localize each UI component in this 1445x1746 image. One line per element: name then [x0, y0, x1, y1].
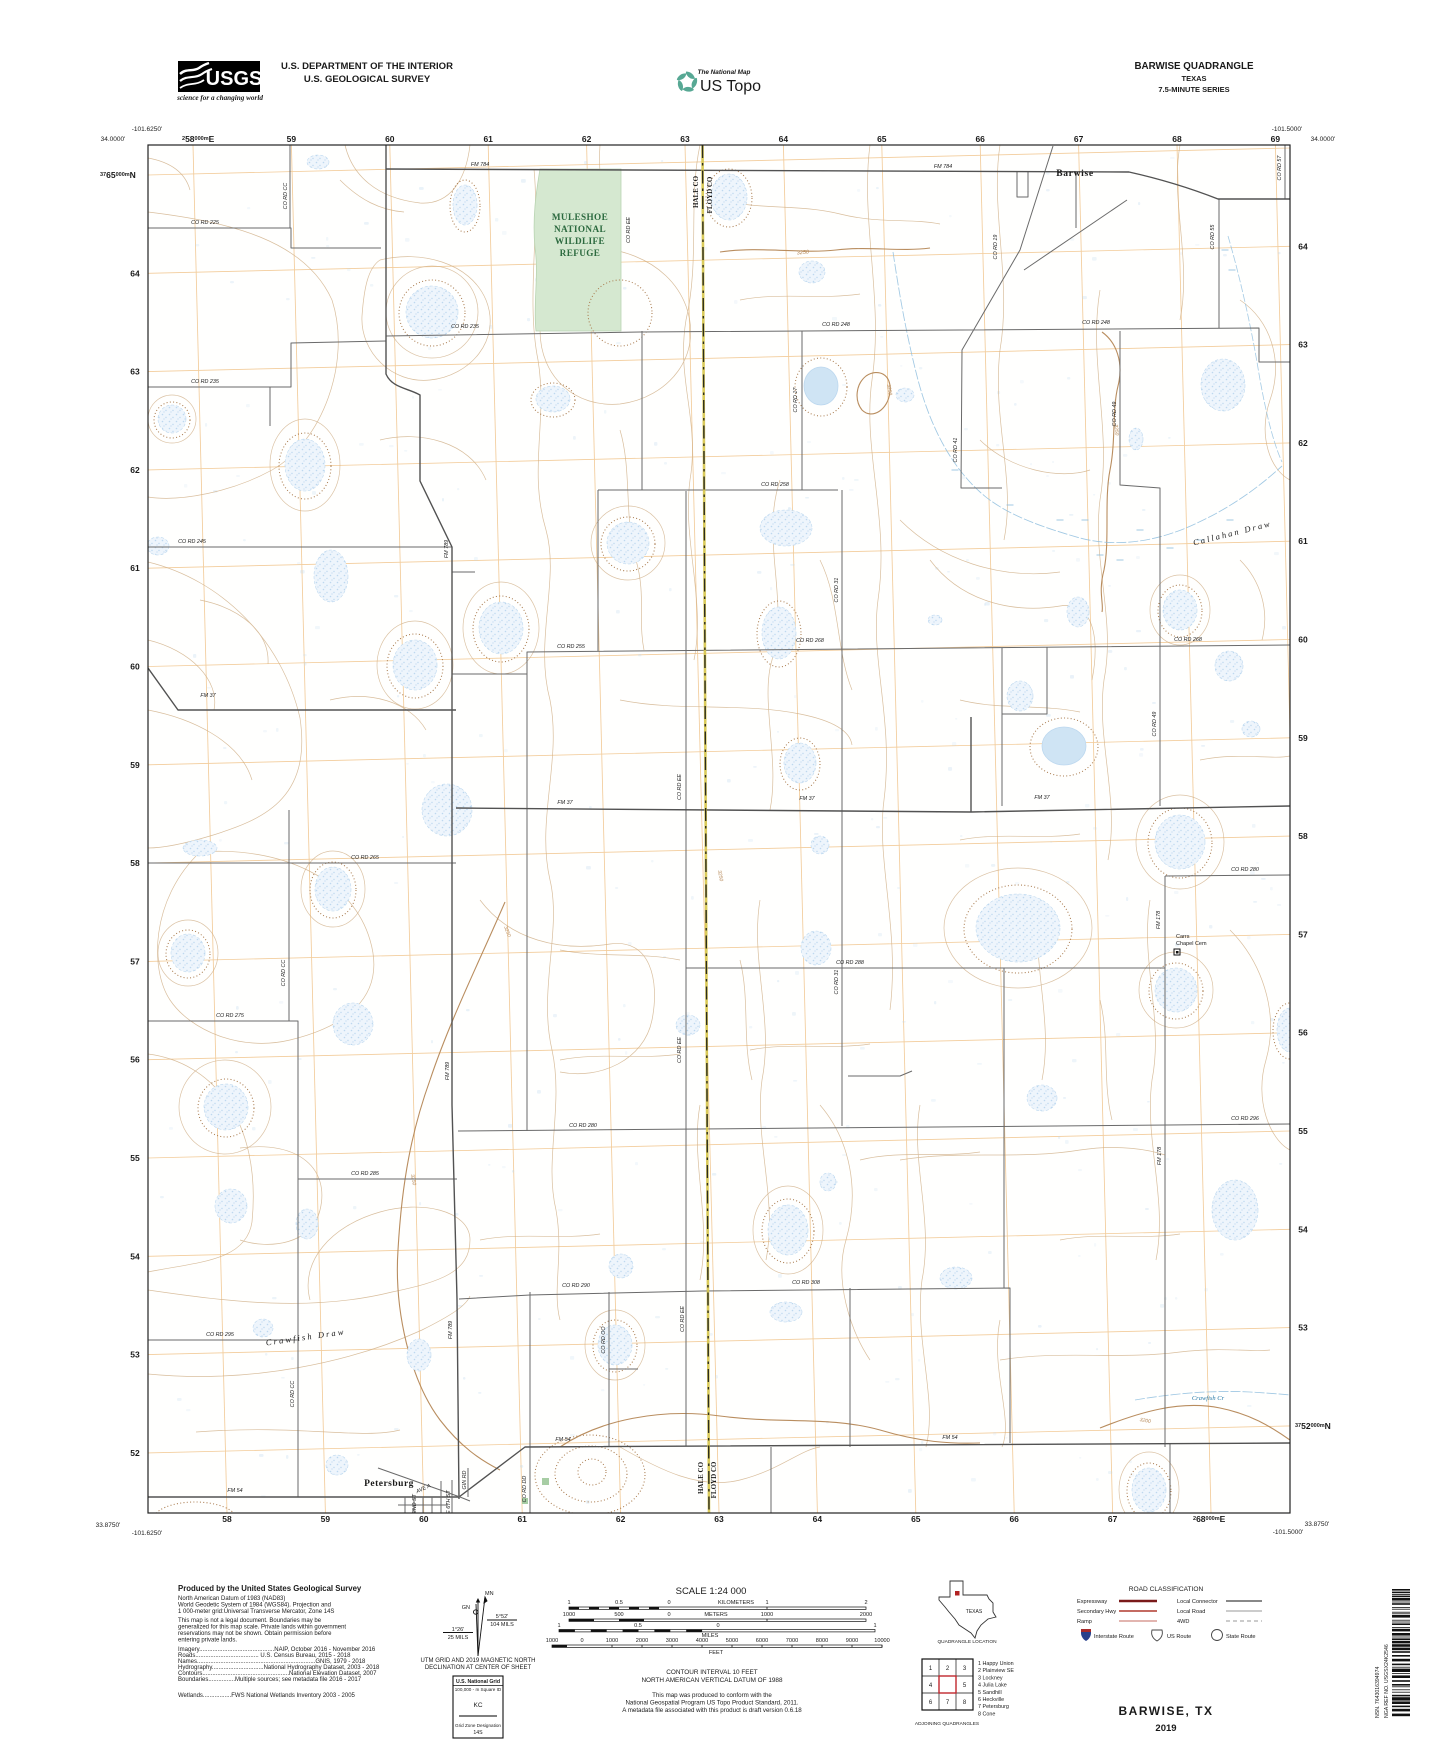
svg-text:CO RD EE: CO RD EE: [680, 1306, 686, 1332]
svg-text:State Route: State Route: [1226, 1634, 1256, 1640]
svg-text:Secondary Hwy: Secondary Hwy: [1077, 1609, 1116, 1615]
svg-text:CO RD 31: CO RD 31: [834, 970, 840, 995]
svg-text:1000: 1000: [546, 1638, 558, 1644]
svg-text:100,000 - m Square ID: 100,000 - m Square ID: [455, 1687, 502, 1692]
svg-text:1 000-meter grid:Universal Tra: 1 000-meter grid:Universal Transverse Me…: [178, 1609, 334, 1615]
svg-text:1000: 1000: [761, 1612, 773, 1618]
svg-text:FM 789: FM 789: [444, 540, 450, 558]
svg-text:62: 62: [130, 465, 140, 475]
svg-text:64: 64: [130, 268, 140, 278]
svg-text:CO RD 248: CO RD 248: [1082, 320, 1110, 326]
svg-text:66: 66: [975, 134, 985, 144]
svg-text:CO RD 235: CO RD 235: [191, 379, 220, 385]
svg-text:CO RD 245: CO RD 245: [178, 539, 207, 545]
svg-text:CO RD 290: CO RD 290: [562, 1283, 590, 1289]
svg-text:68: 68: [1172, 134, 1182, 144]
svg-text:63: 63: [1298, 340, 1308, 350]
svg-text:54: 54: [130, 1251, 140, 1261]
svg-text:2: 2: [864, 1600, 867, 1606]
svg-text:METERS: METERS: [704, 1612, 728, 1618]
svg-text:64: 64: [779, 134, 789, 144]
svg-text:CO RD 255: CO RD 255: [557, 644, 586, 650]
svg-text:FM 784: FM 784: [471, 162, 489, 168]
svg-text:54: 54: [1298, 1224, 1308, 1234]
svg-text:DECLINATION AT CENTER OF SHEET: DECLINATION AT CENTER OF SHEET: [425, 1665, 532, 1671]
svg-text:1: 1: [765, 1600, 768, 1606]
svg-text:Local Road: Local Road: [1177, 1609, 1205, 1615]
svg-text:US Topo: US Topo: [700, 78, 761, 95]
svg-text:2019: 2019: [1155, 1723, 1176, 1734]
svg-text:1 Happy Union: 1 Happy Union: [978, 1661, 1014, 1667]
svg-text:4000: 4000: [696, 1638, 708, 1644]
svg-text:69: 69: [1271, 134, 1281, 144]
svg-text:E 6TH ST: E 6TH ST: [446, 1489, 452, 1513]
svg-text:33.8750': 33.8750': [96, 1522, 121, 1529]
svg-text:25 MILS: 25 MILS: [448, 1635, 469, 1641]
svg-text:60: 60: [1298, 635, 1308, 645]
svg-text:33.8750': 33.8750': [1305, 1521, 1330, 1528]
svg-text:58: 58: [1298, 831, 1308, 841]
svg-text:This map was produced to confo: This map was produced to conform with th…: [652, 1692, 772, 1699]
svg-text:Crawfish Cr: Crawfish Cr: [1192, 1395, 1225, 1402]
svg-text:FM 789: FM 789: [445, 1062, 451, 1080]
svg-text:10000: 10000: [874, 1638, 890, 1644]
svg-text:Carrs: Carrs: [1176, 934, 1190, 940]
svg-text:FLOYD CO: FLOYD CO: [706, 176, 714, 213]
svg-text:1: 1: [873, 1623, 876, 1629]
svg-text:34.0000': 34.0000': [1311, 136, 1336, 143]
svg-text:US Route: US Route: [1167, 1634, 1191, 1640]
svg-text:U.S. GEOLOGICAL SURVEY: U.S. GEOLOGICAL SURVEY: [304, 74, 431, 85]
svg-text:CO RD CC: CO RD CC: [281, 960, 287, 987]
svg-text:CO RD 268: CO RD 268: [1174, 637, 1202, 643]
svg-text:CO RD 235: CO RD 235: [451, 324, 480, 330]
svg-text:CO RD OO: CO RD OO: [601, 1326, 607, 1354]
svg-text:57: 57: [130, 956, 140, 966]
svg-text:0: 0: [667, 1600, 670, 1606]
svg-text:BARWISE, TX: BARWISE, TX: [1119, 1704, 1214, 1718]
svg-text:CO RD 19: CO RD 19: [993, 235, 999, 260]
svg-text:CO RD 295: CO RD 295: [206, 1332, 235, 1338]
svg-text:62: 62: [582, 134, 592, 144]
svg-text:63: 63: [680, 134, 690, 144]
svg-text:TEXAS: TEXAS: [1181, 74, 1206, 83]
svg-text:1°26': 1°26': [452, 1627, 464, 1633]
svg-text:2000: 2000: [860, 1612, 872, 1618]
svg-text:9000: 9000: [846, 1638, 858, 1644]
svg-text:60: 60: [130, 662, 140, 672]
svg-text:59: 59: [1298, 733, 1308, 743]
svg-text:63: 63: [714, 1514, 724, 1524]
svg-text:Ramp: Ramp: [1077, 1619, 1092, 1625]
svg-text:GIN RD: GIN RD: [462, 1470, 468, 1489]
svg-text:59: 59: [130, 760, 140, 770]
svg-text:53: 53: [130, 1350, 140, 1360]
svg-text:61: 61: [1298, 536, 1308, 546]
svg-text:A metadata file associated wit: A metadata file associated with this pro…: [622, 1707, 802, 1714]
svg-text:entering private lands.: entering private lands.: [178, 1638, 237, 1644]
svg-text:QUADRANGLE LOCATION: QUADRANGLE LOCATION: [937, 1639, 997, 1645]
svg-text:CO RD 308: CO RD 308: [792, 1280, 820, 1286]
svg-text:5°52': 5°52': [496, 1614, 508, 1620]
svg-text:65: 65: [877, 134, 887, 144]
svg-text:61: 61: [483, 134, 493, 144]
svg-text:52: 52: [130, 1448, 140, 1458]
svg-text:FM 37: FM 37: [557, 800, 573, 806]
svg-text:Interstate Route: Interstate Route: [1094, 1634, 1134, 1640]
svg-text:4 Julia Lake: 4 Julia Lake: [978, 1683, 1007, 1689]
svg-text:1000: 1000: [606, 1638, 618, 1644]
svg-text:-101.5000': -101.5000': [1273, 1529, 1304, 1536]
svg-text:59: 59: [287, 134, 297, 144]
svg-text:67: 67: [1108, 1514, 1118, 1524]
svg-text:0: 0: [716, 1623, 719, 1629]
svg-text:ADJOINING QUADRANGLES: ADJOINING QUADRANGLES: [915, 1721, 979, 1727]
svg-text:REFUGE: REFUGE: [560, 248, 601, 258]
svg-text:7 Petersburg: 7 Petersburg: [978, 1704, 1009, 1710]
svg-text:61: 61: [517, 1514, 527, 1524]
svg-text:64: 64: [813, 1514, 823, 1524]
svg-text:USGS: USGS: [206, 68, 263, 90]
svg-text:58: 58: [130, 858, 140, 868]
svg-text:63: 63: [130, 367, 140, 377]
svg-text:TEXAS: TEXAS: [966, 1609, 983, 1615]
svg-text:66: 66: [1009, 1514, 1019, 1524]
svg-text:Boundaries................Mult: Boundaries................Multiple sourc…: [178, 1677, 362, 1683]
svg-text:CONTOUR INTERVAL 10 FEET: CONTOUR INTERVAL 10 FEET: [666, 1669, 757, 1676]
svg-text:GN: GN: [462, 1605, 470, 1611]
svg-text:59: 59: [321, 1514, 331, 1524]
svg-text:FM 54: FM 54: [555, 1437, 570, 1443]
svg-text:57: 57: [1298, 929, 1308, 939]
svg-text:NORTH AMERICAN VERTICAL DATUM: NORTH AMERICAN VERTICAL DATUM OF 1988: [641, 1677, 783, 1684]
svg-text:SCALE 1:24 000: SCALE 1:24 000: [676, 1586, 747, 1597]
svg-text:HALE CO: HALE CO: [692, 175, 700, 208]
svg-text:65: 65: [911, 1514, 921, 1524]
svg-text:Chapel Cem: Chapel Cem: [1176, 941, 1207, 947]
svg-text:CO RD 280: CO RD 280: [1231, 867, 1259, 873]
svg-text:FM 54: FM 54: [227, 1488, 242, 1494]
svg-text:NATIONAL: NATIONAL: [554, 224, 606, 234]
svg-text:8 Cone: 8 Cone: [978, 1711, 995, 1717]
svg-text:CO RD CC: CO RD CC: [290, 1381, 296, 1408]
svg-text:0: 0: [667, 1612, 670, 1618]
svg-text:0.5: 0.5: [634, 1623, 642, 1629]
svg-text:HALE CO: HALE CO: [697, 1461, 705, 1494]
svg-text:CO RD 265: CO RD 265: [351, 855, 380, 861]
svg-text:5 Sandhill: 5 Sandhill: [978, 1690, 1002, 1696]
svg-text:FM 178: FM 178: [1157, 1147, 1163, 1165]
svg-text:CO RD CC: CO RD CC: [283, 183, 289, 210]
svg-text:Produced by the United States: Produced by the United States Geological…: [178, 1584, 362, 1593]
svg-text:1: 1: [567, 1600, 570, 1606]
svg-text:North American Datum of 1983 (: North American Datum of 1983 (NAD83): [178, 1596, 285, 1602]
svg-text:-101.6250': -101.6250': [132, 126, 163, 133]
svg-text:CO RD DD: CO RD DD: [522, 1476, 528, 1503]
svg-text:2000: 2000: [636, 1638, 648, 1644]
svg-text:UTM GRID AND 2019 MAGNETIC NOR: UTM GRID AND 2019 MAGNETIC NORTH: [421, 1658, 536, 1664]
svg-text:World Geodetic System of 1984: World Geodetic System of 1984 (WGS84). P…: [178, 1603, 331, 1609]
svg-text:-101.6250': -101.6250': [132, 1530, 163, 1537]
svg-text:-101.5000': -101.5000': [1272, 126, 1303, 133]
svg-text:60: 60: [385, 134, 395, 144]
svg-text:53: 53: [1298, 1323, 1308, 1333]
svg-text:KILOMETERS: KILOMETERS: [718, 1600, 754, 1606]
svg-text:14S: 14S: [473, 1730, 483, 1736]
svg-text:58: 58: [222, 1514, 232, 1524]
svg-text:FM 784: FM 784: [934, 164, 952, 170]
svg-text:This map is not a legal docume: This map is not a legal document. Bounda…: [178, 1618, 322, 1624]
svg-text:0: 0: [580, 1638, 583, 1644]
svg-text:FEET: FEET: [709, 1650, 724, 1656]
svg-text:U.S. National Grid: U.S. National Grid: [456, 1679, 500, 1685]
svg-text:62: 62: [616, 1514, 626, 1524]
svg-text:reservations may not be shown.: reservations may not be shown. Obtain pe…: [178, 1631, 332, 1637]
svg-text:CO RD 41: CO RD 41: [953, 438, 959, 463]
svg-text:CO RD 17: CO RD 17: [793, 387, 799, 413]
svg-text:FM 54: FM 54: [942, 1435, 957, 1441]
svg-text:science for a changing world: science for a changing world: [176, 94, 263, 102]
svg-text:2 Plainview SE: 2 Plainview SE: [978, 1668, 1014, 1674]
svg-text:MULESHOE: MULESHOE: [552, 212, 608, 222]
svg-text:3 Lockney: 3 Lockney: [978, 1675, 1003, 1681]
svg-text:BARWISE QUADRANGLE: BARWISE QUADRANGLE: [1134, 61, 1253, 72]
svg-text:3250: 3250: [797, 249, 811, 256]
svg-text:CO RD 49: CO RD 49: [1152, 712, 1158, 737]
svg-text:CO RD 55: CO RD 55: [1210, 224, 1216, 250]
svg-text:FM 789: FM 789: [448, 1321, 454, 1339]
svg-text:104 MILS: 104 MILS: [490, 1622, 514, 1628]
svg-text:CO RD EE: CO RD EE: [677, 774, 683, 800]
svg-text:NSN. 7643016394974: NSN. 7643016394974: [1375, 1667, 1381, 1718]
svg-text:7.5-MINUTE SERIES: 7.5-MINUTE SERIES: [1158, 85, 1229, 94]
svg-text:MN: MN: [485, 1591, 494, 1597]
svg-text:CO RD 280: CO RD 280: [569, 1123, 597, 1129]
svg-text:generalized for this map scale: generalized for this map scale. Private …: [178, 1625, 346, 1631]
svg-text:CO RD 225: CO RD 225: [191, 220, 220, 226]
svg-text:FLOYD CO: FLOYD CO: [710, 1461, 718, 1498]
svg-text:Wetlands.................FWS: Wetlands.................FWS National We…: [178, 1693, 356, 1699]
svg-text:FM 37: FM 37: [200, 693, 216, 699]
svg-text:56: 56: [130, 1055, 140, 1065]
svg-text:55: 55: [1298, 1126, 1308, 1136]
svg-text:7000: 7000: [786, 1638, 798, 1644]
svg-text:34.0000': 34.0000': [101, 136, 126, 143]
svg-text:National Geospatial Program US: National Geospatial Program US Topo Prod…: [625, 1700, 798, 1707]
svg-text:CO RD 49: CO RD 49: [1112, 402, 1118, 427]
svg-text:55: 55: [130, 1153, 140, 1163]
svg-text:8000: 8000: [816, 1638, 828, 1644]
svg-text:Petersburg: Petersburg: [364, 1479, 414, 1489]
svg-text:WILDLIFE: WILDLIFE: [555, 236, 605, 246]
svg-text:64: 64: [1298, 241, 1308, 251]
svg-text:0.5: 0.5: [615, 1600, 623, 1606]
svg-text:60: 60: [419, 1514, 429, 1524]
svg-text:CO RD 248: CO RD 248: [822, 322, 850, 328]
svg-text:FM 37: FM 37: [1034, 795, 1050, 801]
svg-text:NGA REF NO. USGSX24K2546: NGA REF NO. USGSX24K2546: [1384, 1644, 1390, 1718]
svg-text:Barwise: Barwise: [1056, 169, 1094, 179]
svg-text:CO RD 275: CO RD 275: [216, 1013, 245, 1019]
svg-text:FM 178: FM 178: [1156, 911, 1162, 929]
svg-text:6 Heckville: 6 Heckville: [978, 1697, 1004, 1703]
svg-text:67: 67: [1074, 134, 1084, 144]
svg-text:56: 56: [1298, 1028, 1308, 1038]
svg-text:CO RD 268: CO RD 268: [796, 638, 824, 644]
svg-text:4WD: 4WD: [1177, 1619, 1189, 1625]
svg-text:KC: KC: [473, 1702, 482, 1709]
svg-text:FM 37: FM 37: [799, 796, 815, 802]
svg-text:Local Connector: Local Connector: [1177, 1599, 1218, 1605]
svg-text:CO RD 258: CO RD 258: [761, 482, 789, 488]
svg-text:62: 62: [1298, 438, 1308, 448]
svg-text:Grid Zone Designation: Grid Zone Designation: [455, 1723, 501, 1728]
svg-text:CO RD 31: CO RD 31: [834, 578, 840, 603]
svg-text:500: 500: [614, 1612, 623, 1618]
svg-text:1000: 1000: [563, 1612, 575, 1618]
svg-text:3000: 3000: [666, 1638, 678, 1644]
svg-text:Expressway: Expressway: [1077, 1599, 1107, 1605]
svg-text:6000: 6000: [756, 1638, 768, 1644]
svg-text:CO RD EE: CO RD EE: [626, 217, 632, 243]
svg-text:61: 61: [130, 563, 140, 573]
svg-text:CO RD 285: CO RD 285: [351, 1171, 380, 1177]
svg-text:The National Map: The National Map: [698, 69, 751, 76]
svg-text:1: 1: [557, 1623, 560, 1629]
svg-text:CO RD EE: CO RD EE: [677, 1037, 683, 1063]
svg-text:CO RD 57: CO RD 57: [1277, 155, 1283, 181]
svg-text:5000: 5000: [726, 1638, 738, 1644]
svg-text:CO RD 288: CO RD 288: [836, 960, 864, 966]
svg-text:CO RD 296: CO RD 296: [1231, 1116, 1259, 1122]
svg-text:ROAD CLASSIFICATION: ROAD CLASSIFICATION: [1129, 1586, 1204, 1593]
svg-text:U.S. DEPARTMENT OF THE INTERIO: U.S. DEPARTMENT OF THE INTERIOR: [281, 61, 453, 72]
